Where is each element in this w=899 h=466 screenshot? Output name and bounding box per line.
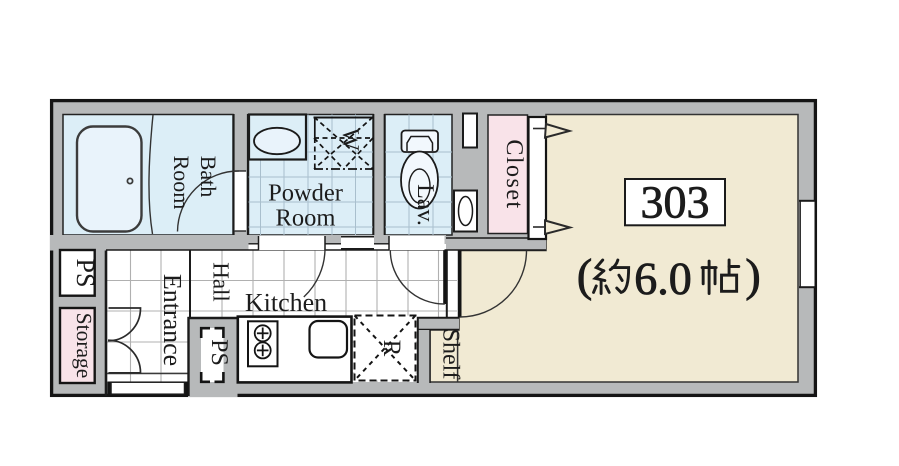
svg-text:Hall: Hall <box>209 262 234 302</box>
svg-text:6.0: 6.0 <box>634 253 692 304</box>
svg-text:Room: Room <box>169 156 194 210</box>
svg-text:(: ( <box>577 250 592 301</box>
svg-text:Entrance: Entrance <box>158 274 187 366</box>
svg-text:303: 303 <box>641 177 710 228</box>
svg-text:Storage: Storage <box>72 313 96 379</box>
svg-text:PS: PS <box>206 339 232 366</box>
svg-text:W: W <box>337 128 363 151</box>
svg-text:Kitchen: Kitchen <box>245 288 327 317</box>
svg-text:Room: Room <box>276 205 336 232</box>
svg-text:Shelf: Shelf <box>438 329 464 380</box>
svg-text:Powder: Powder <box>268 180 343 207</box>
svg-text:): ) <box>745 250 760 301</box>
svg-text:Lav.: Lav. <box>412 184 438 226</box>
svg-text:Closet: Closet <box>501 139 527 209</box>
svg-text:PS: PS <box>71 259 100 288</box>
svg-text:R: R <box>378 340 405 357</box>
svg-text:Bath: Bath <box>196 156 221 198</box>
